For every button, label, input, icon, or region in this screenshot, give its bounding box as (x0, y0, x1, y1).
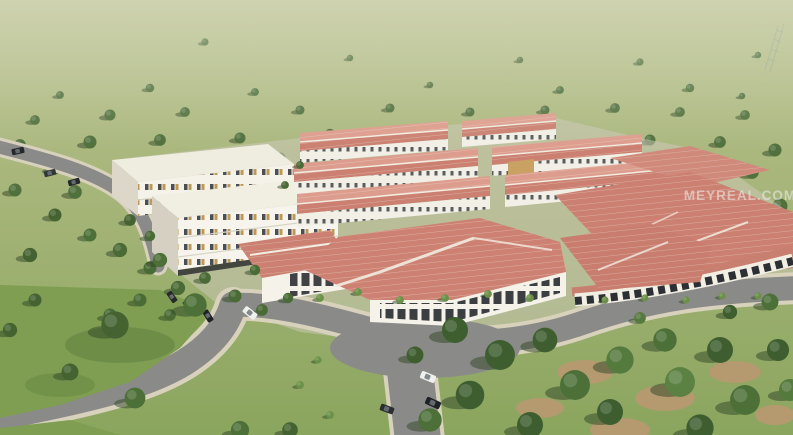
haze-overlay (0, 0, 793, 150)
aerial-render-image: MEYREAL.COM (0, 0, 793, 435)
watermark: MEYREAL.COM (684, 188, 793, 203)
